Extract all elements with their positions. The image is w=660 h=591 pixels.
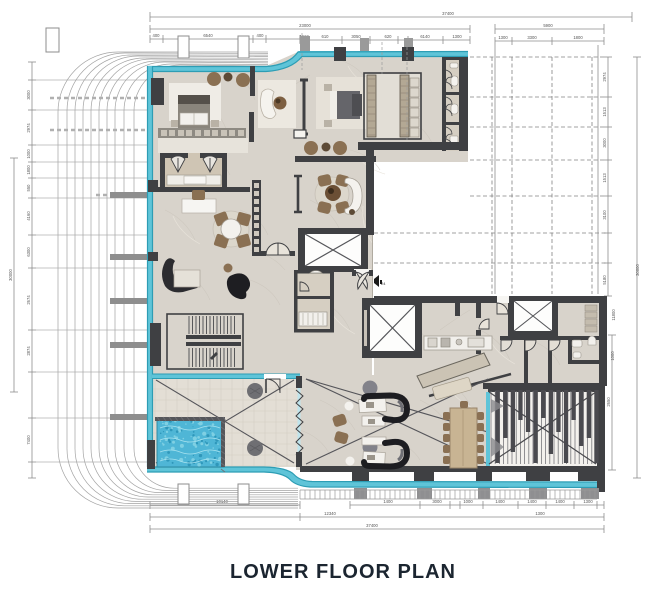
svg-text:11800: 11800 xyxy=(611,309,616,321)
svg-text:2650: 2650 xyxy=(606,397,611,407)
svg-text:4160: 4160 xyxy=(26,211,31,221)
svg-text:1000: 1000 xyxy=(463,499,473,504)
svg-text:1000: 1000 xyxy=(26,149,31,159)
svg-text:3100: 3100 xyxy=(602,210,607,220)
svg-text:3000: 3000 xyxy=(602,138,607,148)
svg-text:LOWER FLOOR PLAN: LOWER FLOOR PLAN xyxy=(230,561,456,583)
svg-text:12340: 12340 xyxy=(324,511,336,516)
svg-text:5180: 5180 xyxy=(602,275,607,285)
svg-text:1400: 1400 xyxy=(527,499,537,504)
svg-text:24: 24 xyxy=(381,281,386,286)
svg-text:2874: 2874 xyxy=(26,346,31,356)
svg-text:1400: 1400 xyxy=(495,499,505,504)
svg-text:3000: 3000 xyxy=(26,90,31,100)
svg-text:1800: 1800 xyxy=(573,35,583,40)
svg-text:1400: 1400 xyxy=(555,499,565,504)
svg-text:1513: 1513 xyxy=(602,107,607,117)
svg-text:1300: 1300 xyxy=(452,34,462,39)
svg-text:1300: 1300 xyxy=(535,511,545,516)
svg-text:7400: 7400 xyxy=(26,435,31,445)
svg-text:3050: 3050 xyxy=(351,34,361,39)
svg-text:37400: 37400 xyxy=(366,523,378,528)
svg-text:3000: 3000 xyxy=(432,499,442,504)
svg-text:1400: 1400 xyxy=(383,499,393,504)
svg-text:30000: 30000 xyxy=(635,264,640,276)
svg-text:3300: 3300 xyxy=(527,35,537,40)
svg-text:37400: 37400 xyxy=(442,11,454,16)
svg-text:2974: 2974 xyxy=(26,123,31,133)
svg-text:400: 400 xyxy=(257,33,265,38)
svg-text:30000: 30000 xyxy=(8,269,13,281)
svg-text:23000: 23000 xyxy=(299,23,311,28)
svg-text:1800: 1800 xyxy=(26,165,31,175)
svg-text:6300: 6300 xyxy=(26,247,31,257)
svg-text:620: 620 xyxy=(385,34,393,39)
svg-text:610: 610 xyxy=(322,34,330,39)
svg-text:400: 400 xyxy=(153,33,161,38)
svg-text:5900: 5900 xyxy=(543,23,553,28)
svg-text:2974: 2974 xyxy=(602,72,607,82)
svg-text:1513: 1513 xyxy=(602,173,607,183)
svg-text:2674: 2674 xyxy=(26,295,31,305)
svg-text:550: 550 xyxy=(26,184,31,192)
svg-text:6140: 6140 xyxy=(420,34,430,39)
svg-text:6540: 6540 xyxy=(203,33,213,38)
svg-text:1300: 1300 xyxy=(498,35,508,40)
svg-text:1300: 1300 xyxy=(583,499,593,504)
svg-text:1000: 1000 xyxy=(610,351,615,361)
